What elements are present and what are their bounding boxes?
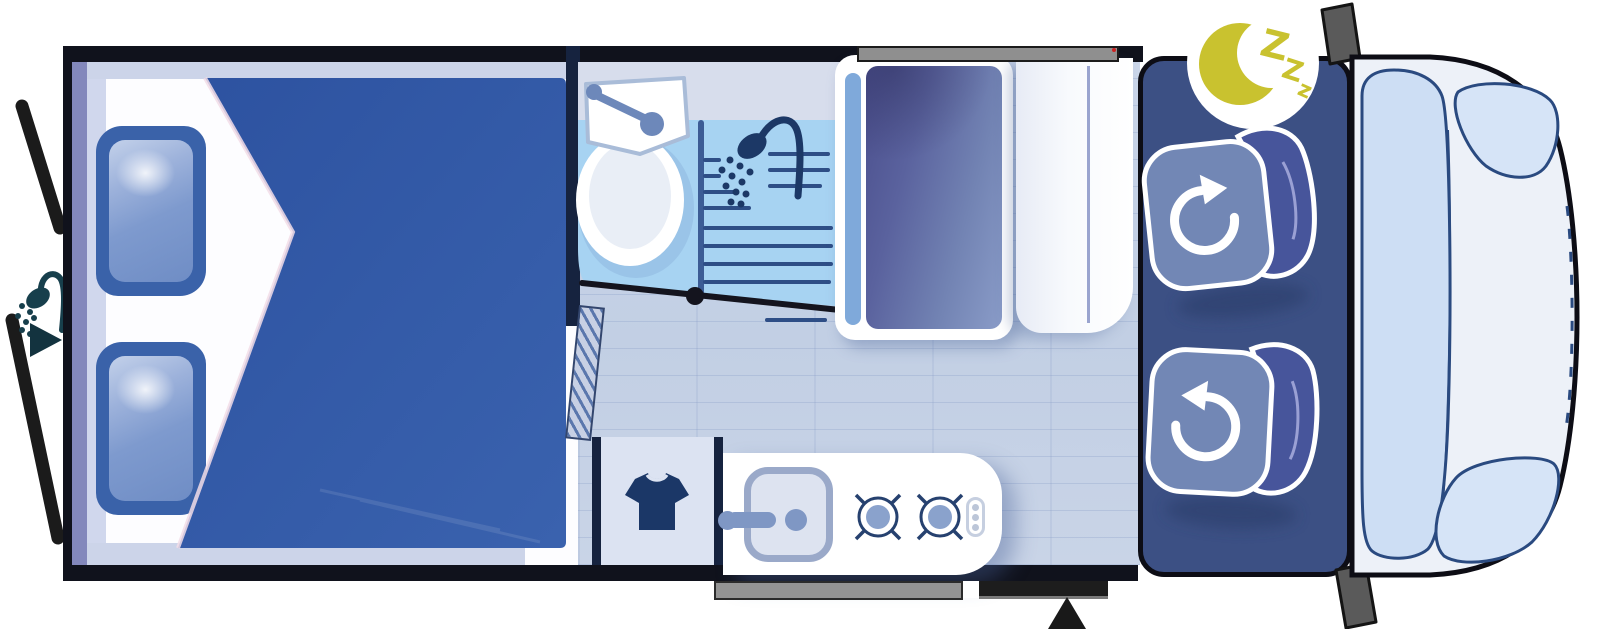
motorhome-floorplan: Z Z z <box>0 0 1600 629</box>
entry-marker <box>1048 597 1088 629</box>
seat-cushion <box>1146 348 1273 496</box>
kitchen-faucet-knob <box>785 509 807 531</box>
direction-arrow-icon <box>30 323 62 357</box>
awning-rail <box>857 46 1119 62</box>
bathroom <box>578 62 860 330</box>
swivel-seat-rear <box>1145 338 1321 532</box>
wall-wardrobe-kitchen <box>714 437 723 565</box>
entry-step <box>714 581 963 600</box>
duvet-cover <box>178 78 566 548</box>
tshirt-icon <box>625 472 689 532</box>
swivel-seat-front <box>1140 124 1325 326</box>
hob-control-panel <box>966 497 985 537</box>
outdoor-shower-icon <box>15 274 64 337</box>
rear-door-line-top <box>22 106 60 228</box>
step-gap <box>963 581 979 598</box>
cabinet <box>1016 58 1133 333</box>
burner-icon <box>918 495 962 539</box>
cubicle-door-panel <box>866 66 1002 329</box>
step-shadow <box>979 581 1108 599</box>
toilet-bowl <box>589 143 671 249</box>
seat-cushion <box>1141 138 1275 292</box>
van-front <box>1330 0 1600 629</box>
door-hinge <box>686 287 704 305</box>
sleep-badge: Z Z z <box>1185 0 1325 135</box>
cabinet-divider <box>1087 66 1090 323</box>
bed-headboard <box>72 62 87 565</box>
rail-end-dot <box>1112 48 1116 52</box>
kitchen-faucet-base <box>718 511 737 530</box>
bed-duvet <box>140 60 580 565</box>
cubicle-handle <box>845 73 861 325</box>
seat-shadow <box>1165 493 1298 532</box>
shower-divider <box>698 120 704 300</box>
burner-icon <box>856 495 900 539</box>
bathroom-sink <box>586 78 688 154</box>
windshield <box>1362 70 1450 558</box>
wall-left <box>63 46 72 581</box>
